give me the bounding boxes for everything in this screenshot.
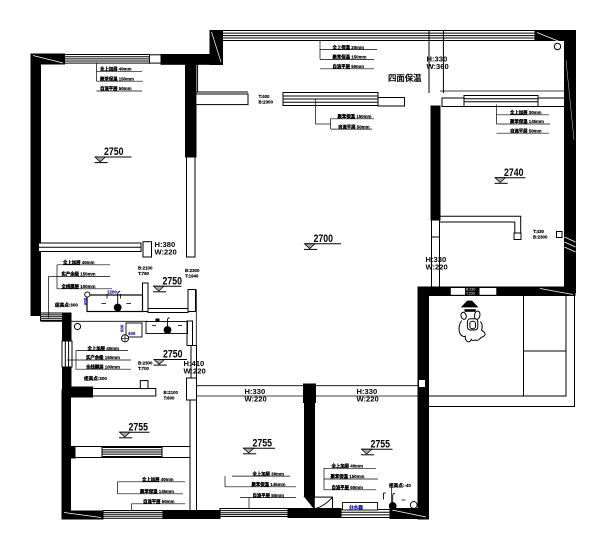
svg-text:2750: 2750: [163, 349, 183, 361]
svg-text:T:230: T:230: [466, 292, 475, 296]
svg-text:B:2100: B:2100: [164, 390, 179, 395]
svg-text:B:2300: B:2300: [259, 99, 274, 104]
svg-text:四面保温: 四面保温: [388, 73, 422, 83]
svg-text:400: 400: [128, 331, 136, 336]
svg-text:T:600: T:600: [164, 395, 176, 400]
svg-text:T:1940: T:1940: [185, 273, 199, 278]
svg-text:组高点:300: 组高点:300: [55, 302, 78, 309]
svg-text:2740: 2740: [504, 167, 524, 179]
svg-text:B:2300: B:2300: [185, 268, 200, 273]
svg-text:B:2100: B:2100: [138, 266, 153, 271]
svg-text:2755: 2755: [371, 438, 391, 450]
svg-text:W:220: W:220: [245, 394, 267, 403]
svg-text:600: 600: [83, 297, 88, 305]
svg-text:600: 600: [120, 324, 125, 332]
svg-text:分水器: 分水器: [349, 504, 363, 511]
svg-text:T:400: T:400: [259, 94, 271, 99]
svg-text:W:220: W:220: [184, 366, 206, 375]
svg-text:2750: 2750: [104, 146, 124, 158]
svg-text:组高点:300: 组高点:300: [84, 375, 107, 382]
svg-text:组高点:-40: 组高点:-40: [389, 482, 411, 489]
svg-text:T:760: T:760: [138, 271, 150, 276]
svg-text:2755: 2755: [129, 421, 149, 433]
svg-text:2755: 2755: [253, 437, 273, 449]
svg-text:B:2300: B:2300: [533, 234, 548, 239]
svg-text:W:220: W:220: [426, 262, 448, 271]
svg-text:T:700: T:700: [138, 366, 150, 371]
svg-text:T:430: T:430: [533, 229, 545, 234]
svg-text:B:2300: B:2300: [138, 361, 153, 366]
svg-text:W:220: W:220: [155, 247, 177, 256]
svg-text:2700: 2700: [314, 233, 334, 245]
svg-text:W:360: W:360: [427, 62, 449, 71]
svg-text:W:220: W:220: [357, 394, 379, 403]
svg-text:1200: 1200: [107, 290, 117, 295]
